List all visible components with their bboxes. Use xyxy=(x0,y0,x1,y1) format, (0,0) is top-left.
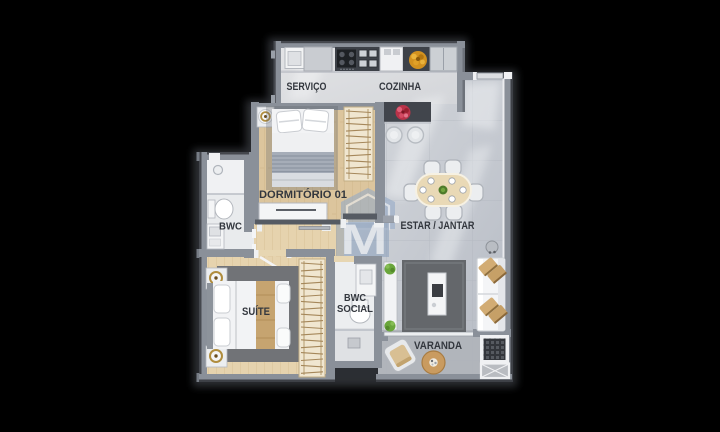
svg-text:VARANDA: VARANDA xyxy=(414,340,462,352)
svg-text:BWC: BWC xyxy=(219,221,242,233)
svg-text:SUÍTE: SUÍTE xyxy=(242,305,270,318)
svg-text:DORMITÓRIO 01: DORMITÓRIO 01 xyxy=(259,188,347,201)
svg-text:SERVIÇO: SERVIÇO xyxy=(287,81,327,93)
svg-text:SOCIAL: SOCIAL xyxy=(337,303,374,315)
svg-text:ESTAR / JANTAR: ESTAR / JANTAR xyxy=(401,220,475,232)
svg-text:COZINHA: COZINHA xyxy=(379,81,421,93)
